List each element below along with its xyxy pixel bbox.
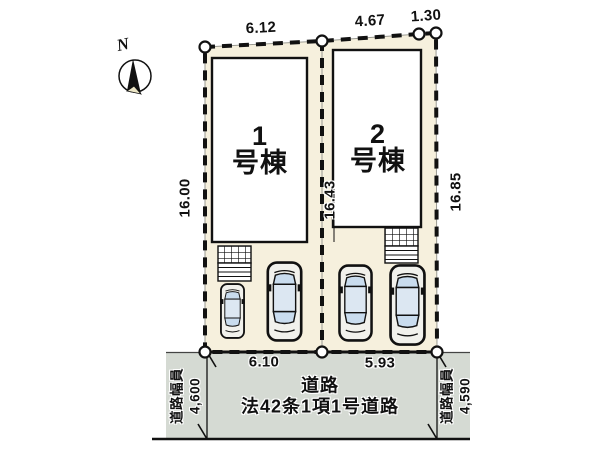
entrance-2 (385, 228, 418, 263)
car-icon (338, 266, 372, 341)
road-width-right-value: 4,590 (456, 368, 474, 424)
car-icon (267, 263, 302, 341)
building-1-suffix: 号棟 (232, 150, 288, 177)
building-2-label: 2 号棟 (350, 121, 406, 175)
road-width-right: 道路幅員 4,590 (438, 368, 473, 424)
road-width-left-label: 道路幅員 (168, 368, 186, 424)
car-icon (220, 284, 245, 338)
dimension-side-middle: 16.43 (322, 180, 339, 219)
building-1-number: 1 (232, 123, 288, 150)
dimension-top-3: 1.30 (410, 6, 442, 25)
dimension-frontage-2: 5.93 (365, 355, 395, 372)
road-width-left-value: 4,600 (186, 368, 204, 424)
road-width-right-label: 道路幅員 (438, 368, 456, 424)
dimension-frontage-1: 6.10 (249, 354, 279, 371)
road-name: 道路 (241, 375, 399, 396)
dimension-side-right: 16.85 (448, 172, 465, 211)
site-plan: N 6.12 4.67 1.30 16.00 16.43 16.85 1 号棟 … (0, 0, 600, 469)
compass-icon (119, 59, 151, 94)
entrance-1 (218, 246, 251, 281)
building-2-number: 2 (350, 121, 406, 148)
road-width-left: 道路幅員 4,600 (168, 368, 203, 424)
dimension-top-1: 6.12 (245, 19, 276, 38)
road-label: 道路 法42条1項1号道路 (241, 375, 399, 416)
dimension-side-left: 16.00 (177, 178, 194, 217)
car-icon (390, 265, 426, 344)
dimension-top-2: 4.67 (354, 11, 386, 30)
building-1-label: 1 号棟 (232, 123, 288, 177)
building-2-suffix: 号棟 (350, 148, 406, 175)
road-legal-designation: 法42条1項1号道路 (241, 396, 399, 417)
